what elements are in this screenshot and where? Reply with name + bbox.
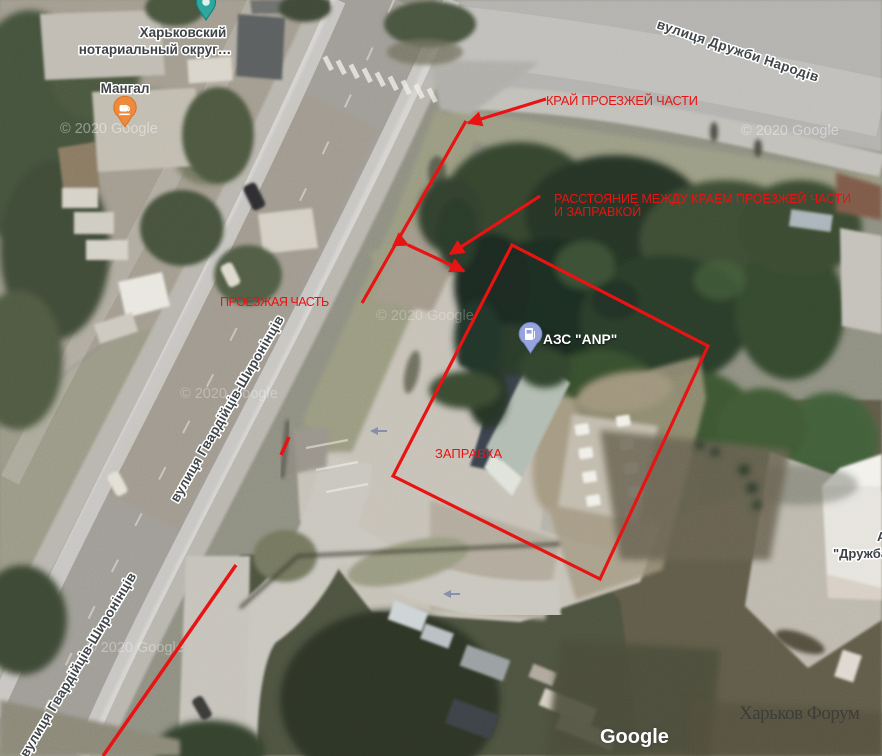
svg-text:© 2020 Google: © 2020 Google: [741, 123, 839, 139]
svg-text:АЗС "ANP": АЗС "ANP": [543, 332, 617, 347]
svg-text:Google: Google: [600, 726, 669, 748]
svg-text:© 2020 Google: © 2020 Google: [86, 640, 184, 656]
svg-text:РАССТОЯНИЕ МЕЖДУ КРАЕМ ПРОЕЗЖЕ: РАССТОЯНИЕ МЕЖДУ КРАЕМ ПРОЕЗЖЕЙ ЧАСТИ: [554, 191, 851, 206]
svg-text:И ЗАПРАВКОЙ: И ЗАПРАВКОЙ: [554, 204, 641, 219]
svg-text:Мангал: Мангал: [101, 81, 150, 96]
svg-text:ПРОЕЗЖАЯ ЧАСТЬ: ПРОЕЗЖАЯ ЧАСТЬ: [220, 295, 329, 309]
svg-text:Харьков Форум: Харьков Форум: [739, 703, 860, 724]
svg-text:Харьковский: Харьковский: [140, 25, 227, 40]
svg-text:нотариальный округ…: нотариальный округ…: [79, 42, 232, 57]
svg-text:КРАЙ ПРОЕЗЖЕЙ ЧАСТИ: КРАЙ ПРОЕЗЖЕЙ ЧАСТИ: [546, 93, 698, 108]
svg-text:© 2020 Google: © 2020 Google: [376, 308, 474, 324]
svg-text:© 2020 Google: © 2020 Google: [60, 121, 158, 137]
svg-text:"Дружба": "Дружба": [833, 546, 882, 561]
svg-text:АЗС: АЗС: [877, 529, 882, 544]
svg-text:ЗАПРАВКА: ЗАПРАВКА: [435, 446, 502, 461]
